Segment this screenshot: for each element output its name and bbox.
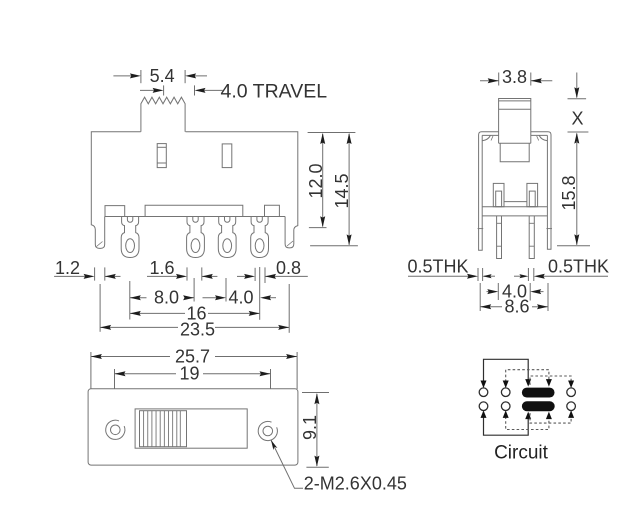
- svg-text:9.1: 9.1: [300, 415, 320, 440]
- svg-text:4.0: 4.0: [228, 288, 253, 308]
- svg-text:15.8: 15.8: [559, 175, 579, 210]
- svg-text:4.0 TRAVEL: 4.0 TRAVEL: [221, 81, 328, 103]
- svg-text:0.5THK: 0.5THK: [548, 257, 609, 277]
- svg-text:12.0: 12.0: [306, 163, 326, 198]
- svg-text:2-M2.6X0.45: 2-M2.6X0.45: [304, 474, 407, 494]
- svg-text:0.8: 0.8: [276, 258, 301, 278]
- svg-text:8.0: 8.0: [154, 288, 179, 308]
- svg-text:5.4: 5.4: [150, 66, 175, 86]
- svg-text:1.6: 1.6: [149, 258, 174, 278]
- svg-text:Circuit: Circuit: [494, 442, 549, 463]
- svg-text:23.5: 23.5: [180, 319, 215, 339]
- svg-text:14.5: 14.5: [332, 173, 352, 208]
- svg-text:3.8: 3.8: [502, 67, 527, 87]
- svg-text:8.6: 8.6: [504, 297, 529, 317]
- svg-text:X: X: [571, 109, 583, 129]
- svg-text:0.5THK: 0.5THK: [407, 257, 468, 277]
- svg-text:19: 19: [179, 364, 199, 384]
- svg-text:1.2: 1.2: [55, 258, 80, 278]
